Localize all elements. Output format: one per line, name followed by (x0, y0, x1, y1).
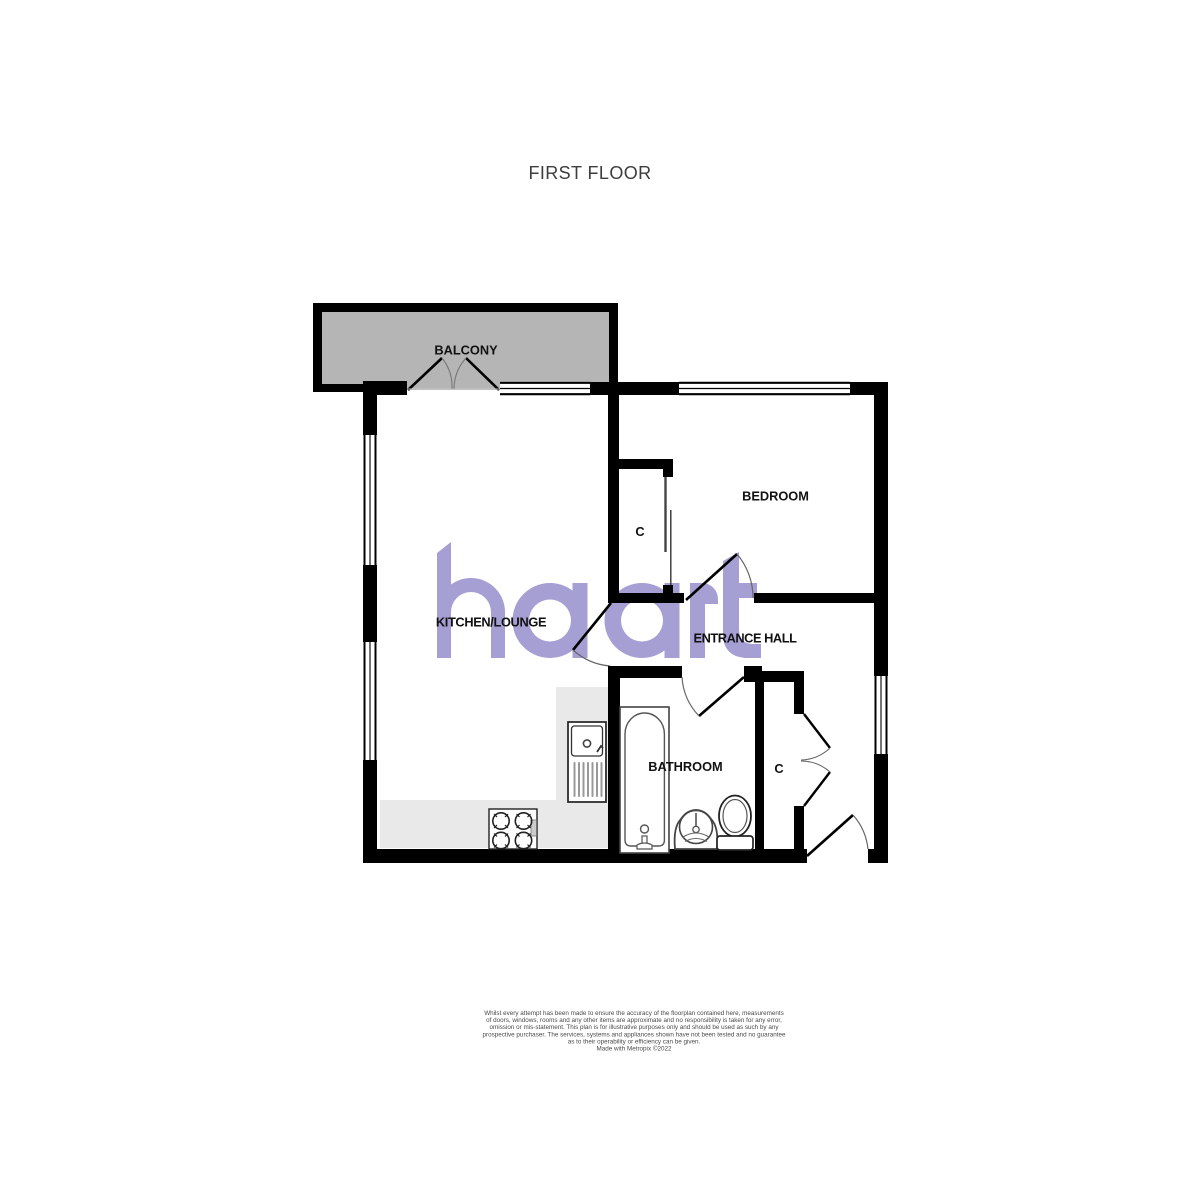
svg-text:BEDROOM: BEDROOM (742, 489, 809, 504)
svg-text:C: C (774, 761, 783, 776)
svg-text:KITCHEN/LOUNGE: KITCHEN/LOUNGE (436, 615, 547, 630)
svg-text:as to their operability or eff: as to their operability or efficiency ca… (568, 1038, 701, 1045)
svg-text:Made with Metropix ©2022: Made with Metropix ©2022 (597, 1045, 672, 1053)
svg-text:of doors, windows, rooms and a: of doors, windows, rooms and any other i… (486, 1017, 782, 1024)
svg-text:ENTRANCE HALL: ENTRANCE HALL (694, 631, 798, 646)
svg-text:prospective purchaser. The ser: prospective purchaser. The services, sys… (482, 1031, 786, 1038)
svg-text:C: C (635, 524, 644, 539)
svg-text:Whilst every attempt has been: Whilst every attempt has been made to en… (484, 1010, 784, 1017)
svg-text:BATHROOM: BATHROOM (648, 759, 722, 774)
svg-text:omission or mis-statement. Thi: omission or mis-statement. This plan is … (490, 1024, 780, 1031)
svg-text:BALCONY: BALCONY (434, 343, 498, 358)
svg-text:FIRST FLOOR: FIRST FLOOR (528, 163, 651, 183)
